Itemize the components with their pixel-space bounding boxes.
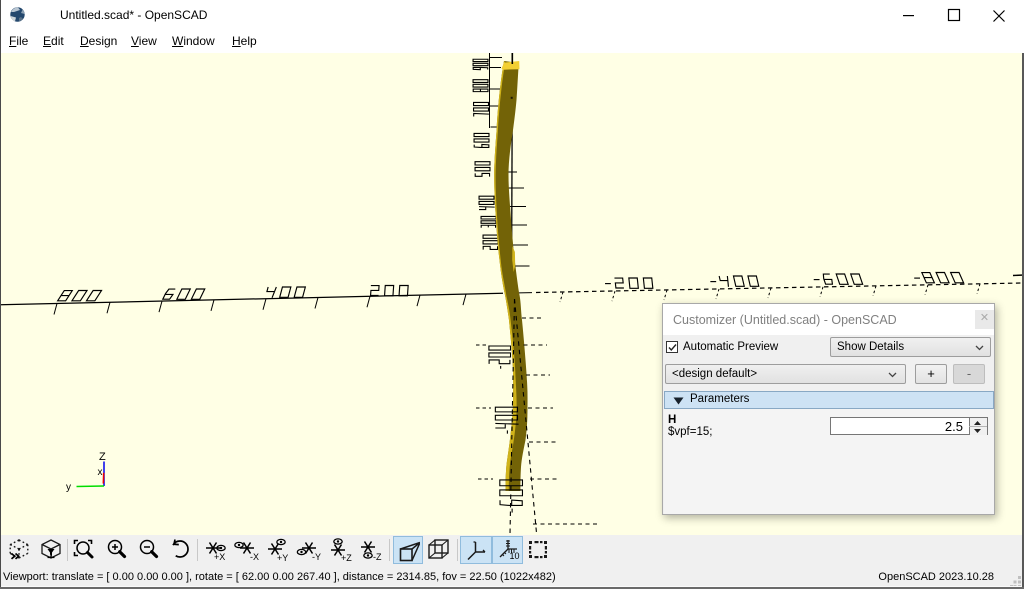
svg-text:y: y xyxy=(66,482,71,493)
svg-text:Z: Z xyxy=(99,451,106,463)
svg-text:+Z: +Z xyxy=(341,553,352,563)
svg-text:+X: +X xyxy=(214,552,225,562)
svg-text:-Z: -Z xyxy=(373,552,382,562)
svg-text:x: x xyxy=(98,467,103,478)
svg-text:-Y: -Y xyxy=(312,552,321,562)
svg-text:+Y: +Y xyxy=(277,553,288,563)
svg-text:-X: -X xyxy=(250,552,259,562)
svg-text:10: 10 xyxy=(510,551,520,561)
